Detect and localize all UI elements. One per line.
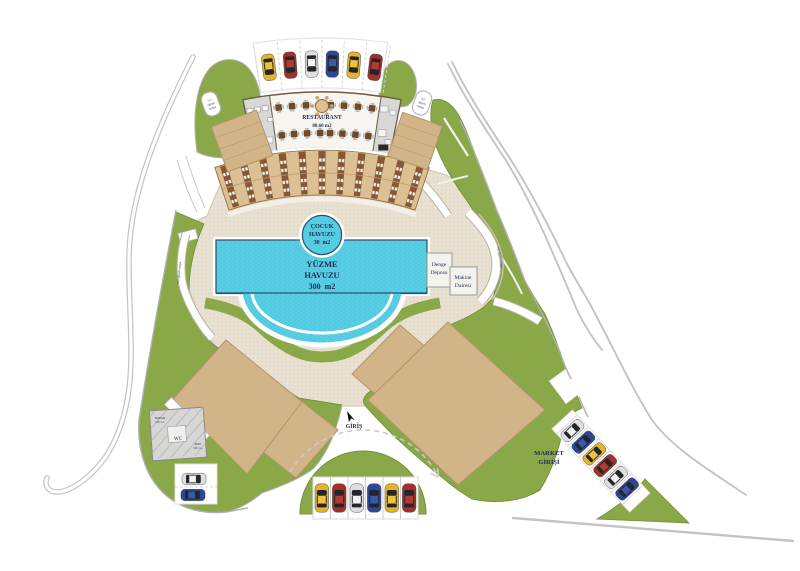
svg-text:WC G.: WC G. (193, 446, 202, 450)
svg-text:WC G.: WC G. (155, 420, 164, 424)
svg-text:MARKET: MARKET (534, 450, 564, 457)
svg-text:YÜZME: YÜZME (306, 260, 338, 269)
svg-text:RESTAURANT: RESTAURANT (302, 115, 342, 121)
svg-text:WC: WC (174, 437, 183, 442)
svg-text:ÇOCUK: ÇOCUK (310, 223, 333, 230)
svg-text:30 m2: 30 m2 (314, 240, 331, 246)
svg-text:HAVUZU: HAVUZU (304, 271, 339, 280)
svg-text:Denge: Denge (432, 262, 447, 268)
svg-text:300 m2: 300 m2 (309, 282, 336, 291)
svg-text:HAVUZU: HAVUZU (309, 231, 336, 238)
svg-text:88.60 m2: 88.60 m2 (312, 124, 332, 129)
svg-text:Dairesi: Dairesi (455, 283, 472, 289)
svg-text:Makine: Makine (454, 275, 472, 281)
svg-text:GİRİŞ: GİRİŞ (346, 423, 362, 430)
svg-text:Deposu: Deposu (430, 270, 447, 276)
svg-text:GİRİŞİ: GİRİŞİ (538, 459, 560, 466)
